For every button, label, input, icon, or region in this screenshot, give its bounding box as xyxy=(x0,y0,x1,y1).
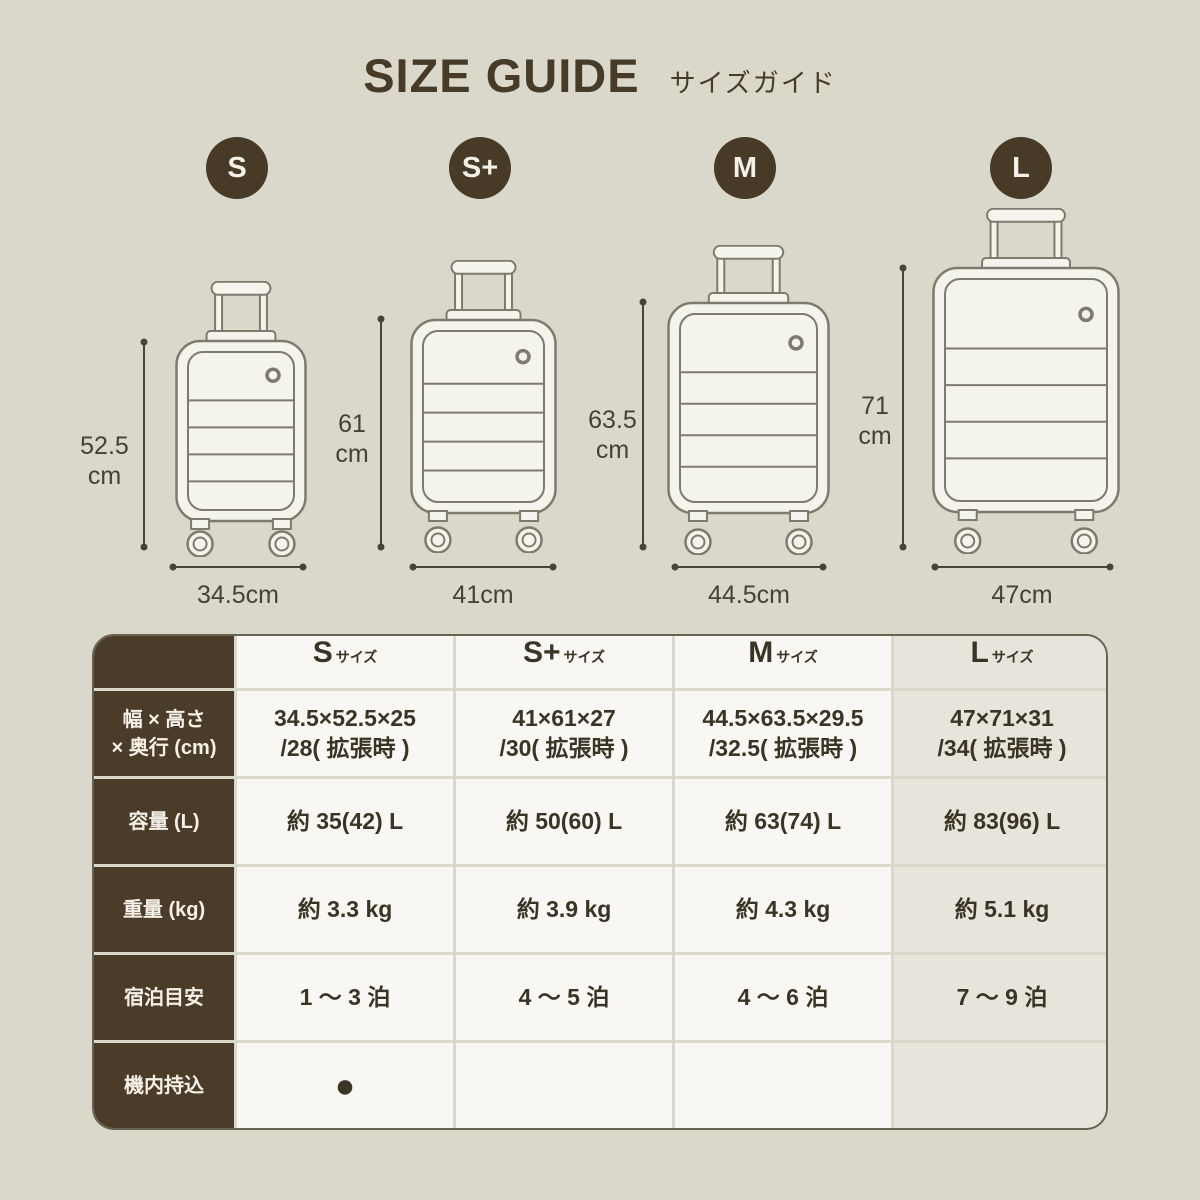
size-spec-table: S サイズ S+ サイズ M サイズ L サイズ 幅 × 高さ × 奥行 (cm… xyxy=(92,634,1108,1130)
height-unit-m: cm xyxy=(570,435,655,465)
table-header-s-plus-sub: サイズ xyxy=(563,647,605,667)
cell-line: 4 〜 6 泊 xyxy=(738,983,829,1013)
cell-line: 約 4.3 kg xyxy=(736,895,831,925)
row-label-capacity: 容量 (L) xyxy=(94,779,234,864)
height-value-l: 71 xyxy=(835,391,915,421)
cell-line: 1 〜 3 泊 xyxy=(300,983,391,1013)
row-label-dimensions-line2: × 奥行 (cm) xyxy=(111,734,216,762)
cell-line: 7 〜 9 泊 xyxy=(957,983,1048,1013)
table-header-s-sub: サイズ xyxy=(336,647,378,667)
row-label-dimensions: 幅 × 高さ × 奥行 (cm) xyxy=(94,691,234,776)
suitcase-illustration-l xyxy=(932,208,1120,559)
cell-line: /30( 拡張時 ) xyxy=(499,734,628,764)
width-label-s-plus: 41cm xyxy=(418,581,548,610)
cell-line: /34( 拡張時 ) xyxy=(937,734,1066,764)
table-cell-carry-on-s-plus xyxy=(456,1043,672,1128)
width-label-m: 44.5cm xyxy=(684,581,814,610)
table-cell-capacity-s-plus: 約 50(60) L xyxy=(456,779,672,864)
suitcase-illustration-s-plus xyxy=(410,260,557,558)
table-cell-dimensions-m: 44.5×63.5×29.5 /32.5( 拡張時 ) xyxy=(675,691,891,776)
height-label-m: 63.5 cm xyxy=(570,405,655,465)
height-unit-s: cm xyxy=(62,461,147,491)
row-label-dimensions-line1: 幅 × 高さ xyxy=(123,706,206,734)
cell-line: /28( 拡張時 ) xyxy=(280,734,409,764)
cell-line: 約 35(42) L xyxy=(287,807,403,837)
table-cell-nights-s: 1 〜 3 泊 xyxy=(237,955,453,1040)
table-cell-nights-s-plus: 4 〜 5 泊 xyxy=(456,955,672,1040)
table-cell-dimensions-s-plus: 41×61×27 /30( 拡張時 ) xyxy=(456,691,672,776)
table-cell-capacity-l: 約 83(96) L xyxy=(894,779,1108,864)
table-header-m-main: M xyxy=(748,636,773,670)
table-cell-weight-l: 約 5.1 kg xyxy=(894,867,1108,952)
table-cell-carry-on-s: ● xyxy=(237,1043,453,1128)
cell-line: 47×71×31 xyxy=(950,704,1054,734)
suitcase-illustration-s xyxy=(175,281,307,562)
width-label-s: 34.5cm xyxy=(173,581,303,610)
table-cell-carry-on-m xyxy=(675,1043,891,1128)
cell-line: 44.5×63.5×29.5 xyxy=(702,704,863,734)
table-header-l-sub: サイズ xyxy=(992,647,1034,667)
table-header-l-main: L xyxy=(971,636,989,670)
height-value-s: 52.5 xyxy=(62,431,147,461)
height-value-s-plus: 61 xyxy=(312,409,392,439)
table-cell-nights-m: 4 〜 6 泊 xyxy=(675,955,891,1040)
table-header-s-plus-main: S+ xyxy=(523,636,561,670)
table-corner-cell xyxy=(94,636,234,688)
table-cell-weight-m: 約 4.3 kg xyxy=(675,867,891,952)
size-guide-page: SIZE GUIDE サイズガイド S S+ M L 52.5 cm 61 cm… xyxy=(0,0,1200,1200)
height-label-l: 71 cm xyxy=(835,391,915,451)
table-header-s: S サイズ xyxy=(237,636,453,688)
carry-on-dot: ● xyxy=(335,1069,356,1103)
table-header-m: M サイズ xyxy=(675,636,891,688)
width-label-l: 47cm xyxy=(957,581,1087,610)
table-cell-dimensions-s: 34.5×52.5×25 /28( 拡張時 ) xyxy=(237,691,453,776)
table-header-m-sub: サイズ xyxy=(776,647,818,667)
cell-line: 41×61×27 xyxy=(512,704,616,734)
table-cell-capacity-s: 約 35(42) L xyxy=(237,779,453,864)
row-label-capacity-line1: 容量 (L) xyxy=(128,808,199,836)
table-cell-dimensions-l: 47×71×31 /34( 拡張時 ) xyxy=(894,691,1108,776)
suitcase-illustration-m xyxy=(667,245,830,560)
table-header-l: L サイズ xyxy=(894,636,1108,688)
cell-line: 約 50(60) L xyxy=(506,807,622,837)
cell-line: 約 83(96) L xyxy=(944,807,1060,837)
table-cell-weight-s: 約 3.3 kg xyxy=(237,867,453,952)
table-header-s-plus: S+ サイズ xyxy=(456,636,672,688)
height-label-s-plus: 61 cm xyxy=(312,409,392,469)
height-unit-s-plus: cm xyxy=(312,439,392,469)
height-label-s: 52.5 cm xyxy=(62,431,147,491)
cell-line: 約 3.9 kg xyxy=(517,895,612,925)
table-cell-carry-on-l xyxy=(894,1043,1108,1128)
row-label-carry-on-line1: 機内持込 xyxy=(124,1072,204,1100)
cell-line: /32.5( 拡張時 ) xyxy=(709,734,857,764)
row-label-nights-line1: 宿泊目安 xyxy=(124,984,204,1012)
cell-line: 4 〜 5 泊 xyxy=(519,983,610,1013)
row-label-carry-on: 機内持込 xyxy=(94,1043,234,1128)
table-cell-weight-s-plus: 約 3.9 kg xyxy=(456,867,672,952)
cell-line: 約 3.3 kg xyxy=(298,895,393,925)
cell-line: 34.5×52.5×25 xyxy=(274,704,416,734)
table-cell-nights-l: 7 〜 9 泊 xyxy=(894,955,1108,1040)
height-unit-l: cm xyxy=(835,421,915,451)
row-label-weight-line1: 重量 (kg) xyxy=(123,896,205,924)
row-label-weight: 重量 (kg) xyxy=(94,867,234,952)
height-value-m: 63.5 xyxy=(570,405,655,435)
table-cell-capacity-m: 約 63(74) L xyxy=(675,779,891,864)
cell-line: 約 63(74) L xyxy=(725,807,841,837)
cell-line: 約 5.1 kg xyxy=(955,895,1050,925)
table-header-s-main: S xyxy=(313,636,333,670)
row-label-nights: 宿泊目安 xyxy=(94,955,234,1040)
